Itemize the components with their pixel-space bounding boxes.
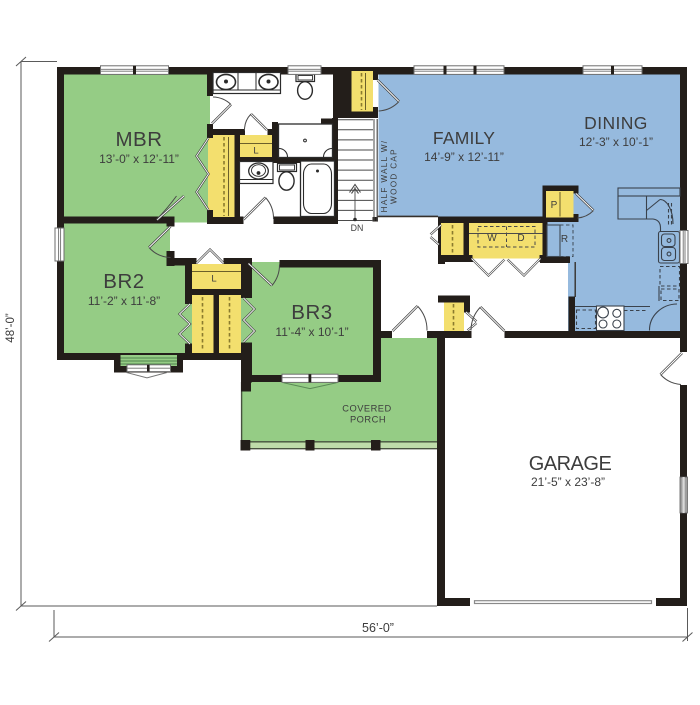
svg-text:W: W [487,233,497,244]
svg-text:BR3: BR3 [291,301,332,324]
svg-text:MBR: MBR [115,128,162,151]
svg-text:11’-4” x 10’-1”: 11’-4” x 10’-1” [275,325,348,339]
svg-text:FAMILY: FAMILY [433,128,495,148]
svg-text:12’-3” x 10’-1”: 12’-3” x 10’-1” [579,135,653,149]
svg-text:COVERED: COVERED [342,404,391,414]
svg-text:21’-5” x 23’-8”: 21’-5” x 23’-8” [531,475,605,489]
svg-text:DINING: DINING [584,113,648,133]
svg-text:14’-9” x 12’-11”: 14’-9” x 12’-11” [424,150,504,164]
svg-text:HALF WALL W/: HALF WALL W/ [380,140,389,213]
svg-text:L: L [211,274,216,285]
svg-text:DN: DN [351,223,364,233]
svg-text:48’-0”: 48’-0” [5,313,17,343]
svg-text:D: D [517,233,524,244]
svg-text:BR2: BR2 [103,270,144,293]
svg-text:PORCH: PORCH [350,415,386,425]
svg-text:WOOD CAP: WOOD CAP [390,148,399,204]
svg-text:56’-0”: 56’-0” [362,621,394,635]
svg-text:R: R [561,234,568,245]
svg-text:P: P [551,200,558,211]
svg-text:L: L [253,146,258,157]
svg-text:11’-2” x 11’-8”: 11’-2” x 11’-8” [88,294,160,308]
svg-text:13’-0” x 12’-11”: 13’-0” x 12’-11” [99,152,179,166]
svg-text:GARAGE: GARAGE [529,453,612,475]
